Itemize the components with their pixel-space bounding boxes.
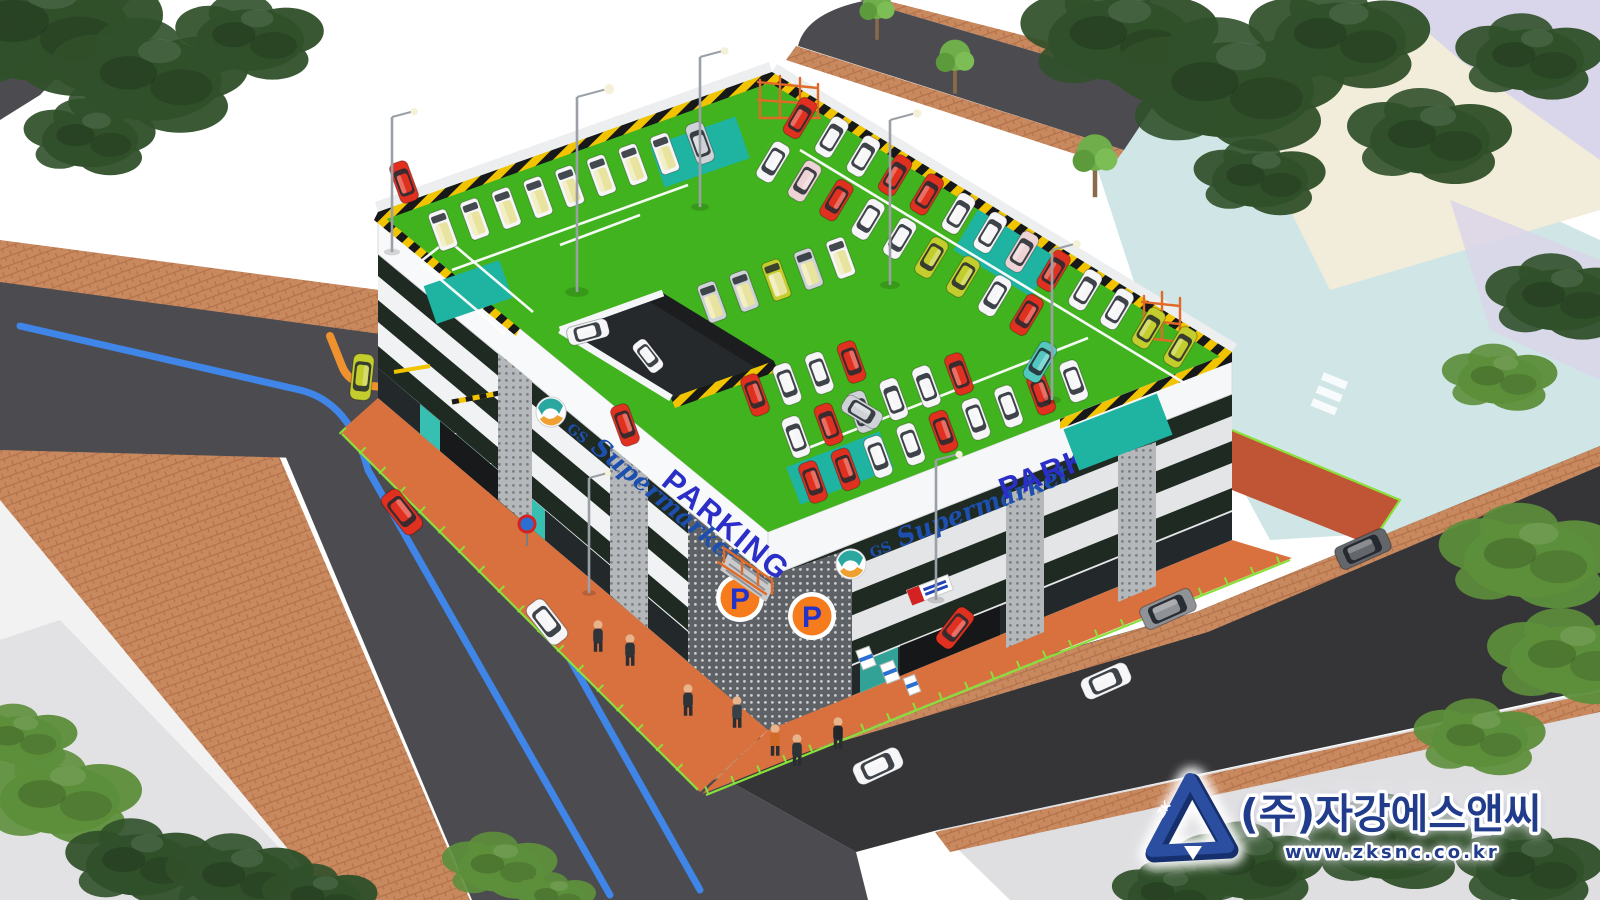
company-name: (주)자강에스앤씨 bbox=[1240, 790, 1542, 838]
street-car-yellow bbox=[349, 353, 375, 401]
company-website: www.zksnc.co.kr bbox=[1285, 842, 1500, 863]
gs-logo-ball bbox=[836, 549, 866, 579]
tree-foliage bbox=[175, 0, 323, 80]
company-watermark: (주)자강에스앤씨 www.zksnc.co.kr ZK (주)자강에스앤씨 w… bbox=[1152, 779, 1542, 863]
gs-logo-ball bbox=[536, 397, 566, 427]
parking-building-scene: GS Supermarket PARKING GS Supermarket PA… bbox=[0, 0, 1600, 900]
architectural-rendering: GS Supermarket PARKING GS Supermarket PA… bbox=[0, 0, 1600, 900]
p-badge-letter: P bbox=[802, 601, 822, 634]
p-badge-right: P bbox=[788, 592, 836, 640]
